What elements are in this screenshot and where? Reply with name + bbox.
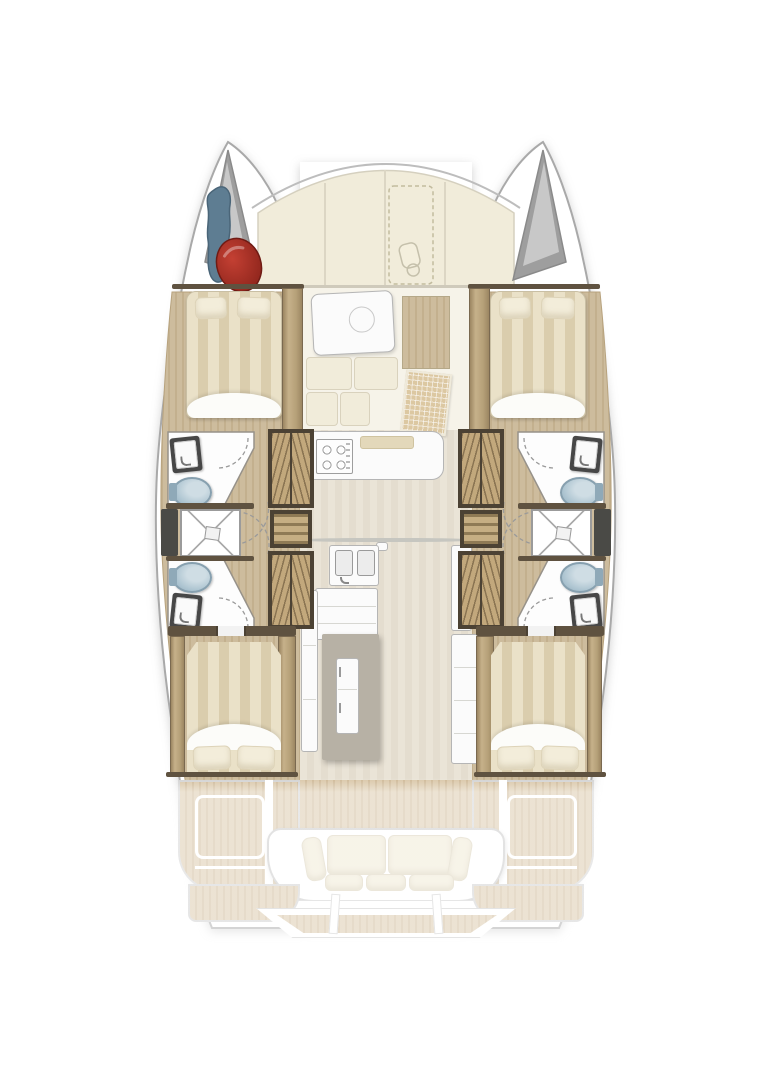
starboard-aft-toilet [560, 562, 600, 593]
port-wardrobe-forward [268, 429, 314, 508]
bed-sheet-fold [491, 393, 585, 418]
bench-seat-cushion [325, 874, 363, 891]
port-companionway-steps [270, 510, 312, 548]
cockpit-deck-center [300, 780, 472, 832]
starboard-forward-sink [569, 436, 602, 474]
port-forward-bed [186, 291, 282, 418]
pillow [237, 745, 276, 770]
table-circle-mark [348, 306, 375, 333]
starboard-shower-wall-aft [518, 556, 606, 561]
stove-cooktop [316, 439, 353, 474]
starboard-aft-cabin-wall [476, 626, 604, 636]
cabinet-seam [318, 623, 376, 624]
sink-basin [335, 550, 353, 576]
cabinet-seam [318, 606, 376, 607]
starboard-step-line [507, 866, 577, 869]
fridge-handle [339, 703, 341, 713]
starboard-companionway-steps [460, 510, 502, 548]
cabinet-seam [303, 645, 316, 646]
fridge-seam [338, 689, 357, 690]
starboard-aft-bed [491, 642, 585, 774]
starboard-aft-sink [569, 593, 602, 631]
starboard-forward-bed [490, 291, 586, 418]
port-hull-window [161, 509, 178, 556]
galley-sink-unit [329, 545, 379, 586]
port-step-panel [195, 795, 265, 859]
port-aft-bulkhead [166, 772, 298, 777]
port-aft-trim-outer [170, 636, 185, 774]
sink-basin [357, 550, 375, 576]
port-wardrobe-aft [268, 551, 314, 629]
bench-back-cushion [388, 835, 452, 875]
dinette-bench-cushion [306, 357, 352, 390]
cabin-door-gap [526, 626, 556, 636]
port-shower [180, 509, 241, 557]
swim-platform [256, 908, 516, 938]
pillow [195, 296, 228, 319]
pillow [541, 296, 576, 319]
fridge-handle [339, 667, 341, 677]
starboard-aft-trim-outer [587, 636, 602, 774]
dinette-bench-cushion [354, 357, 398, 390]
port-aft-sink [169, 593, 202, 631]
dinette-bench-cushion [306, 392, 338, 426]
pillow [499, 296, 532, 319]
port-aft-bed [187, 642, 281, 774]
dinette-bench-cushion [340, 392, 370, 426]
salon-forward-wall [300, 285, 472, 288]
bench-seat-cushion [366, 874, 406, 891]
starboard-aft-bulkhead [474, 772, 606, 777]
salon-sideboard [402, 296, 450, 369]
port-aft-cabin-wall [168, 626, 296, 636]
starboard-hull-window [594, 509, 611, 556]
bench-seat-cushion [409, 874, 454, 891]
salon-table [310, 290, 395, 356]
galley-cabinet [315, 588, 378, 640]
pillow [541, 745, 580, 770]
nav-seat-cushion [400, 370, 452, 436]
fridge [336, 658, 359, 734]
cabin-door-gap [216, 626, 246, 636]
starboard-wardrobe-aft [458, 551, 504, 629]
bed-sheet-fold [187, 393, 281, 418]
bench-back-cushion [327, 835, 386, 875]
port-aft-toilet [172, 562, 212, 593]
shower-drain [555, 526, 572, 541]
pillow [193, 745, 232, 770]
shower-drain [204, 526, 221, 541]
starboard-wardrobe-forward [458, 429, 504, 508]
catamaran-deck-plan [0, 0, 772, 1080]
port-shower-wall-aft [166, 556, 254, 561]
pillow [237, 296, 272, 319]
cabinet-seam [303, 699, 316, 700]
faucet-icon [340, 577, 349, 584]
pillow [497, 745, 536, 770]
galley-tray [360, 436, 414, 449]
starboard-shower [531, 509, 592, 557]
port-step-line [195, 866, 265, 869]
starboard-step-panel [507, 795, 577, 859]
port-forward-sink [169, 436, 202, 474]
swim-platform-teak [277, 915, 497, 933]
